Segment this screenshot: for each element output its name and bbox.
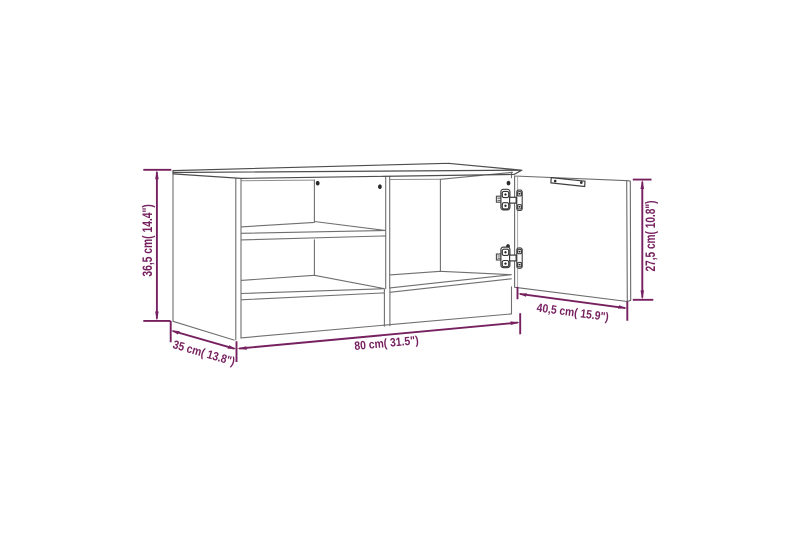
svg-text:36,5 cm( 14.4"): 36,5 cm( 14.4") bbox=[139, 204, 155, 277]
svg-text:27,5 cm( 10.8"): 27,5 cm( 10.8") bbox=[642, 201, 658, 272]
